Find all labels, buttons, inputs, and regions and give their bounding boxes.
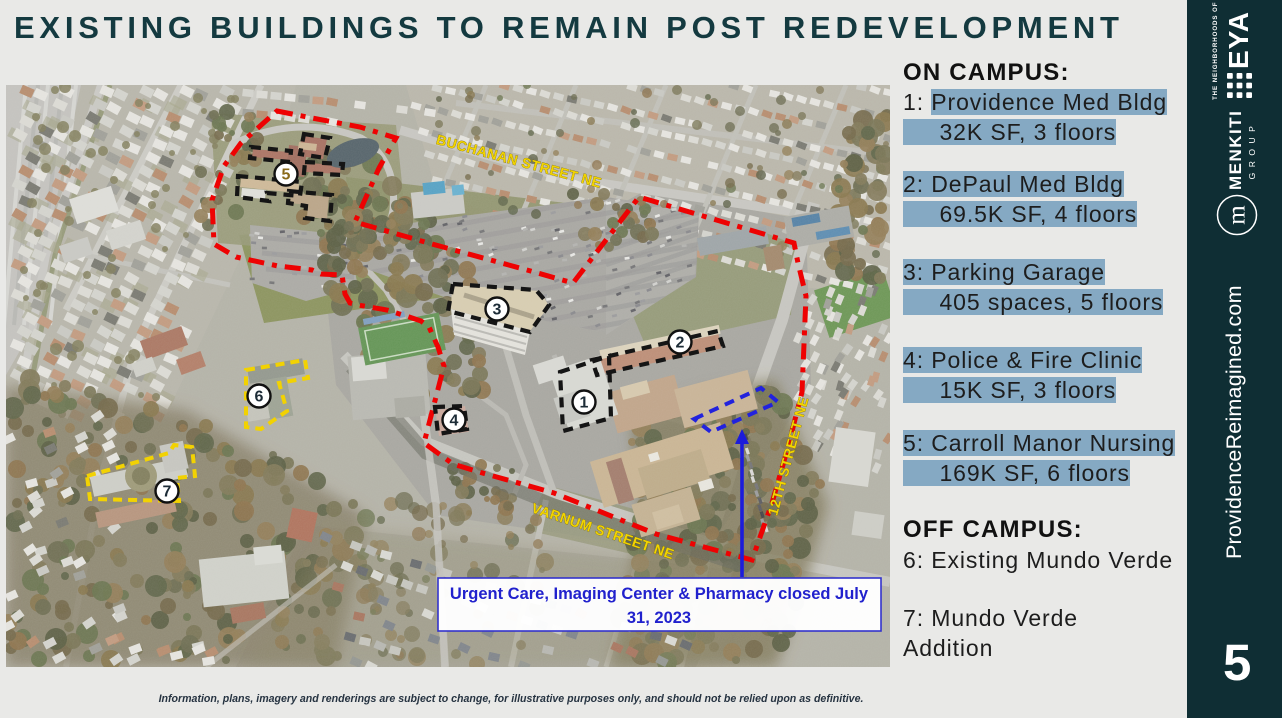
svg-text:2: 2 (676, 335, 685, 352)
svg-text:Urgent Care, Imaging Center &: Urgent Care, Imaging Center & Pharmacy c… (450, 585, 869, 603)
svg-text:6: 6 (255, 389, 264, 406)
svg-text:7: 7 (163, 484, 172, 501)
svg-text:1: 1 (580, 395, 589, 412)
svg-text:m: m (1224, 205, 1251, 225)
svg-text:5: 5 (282, 167, 291, 184)
svg-text:3: 3 (493, 302, 502, 319)
svg-text:4: 4 (450, 413, 459, 430)
svg-text:31, 2023: 31, 2023 (627, 609, 691, 627)
